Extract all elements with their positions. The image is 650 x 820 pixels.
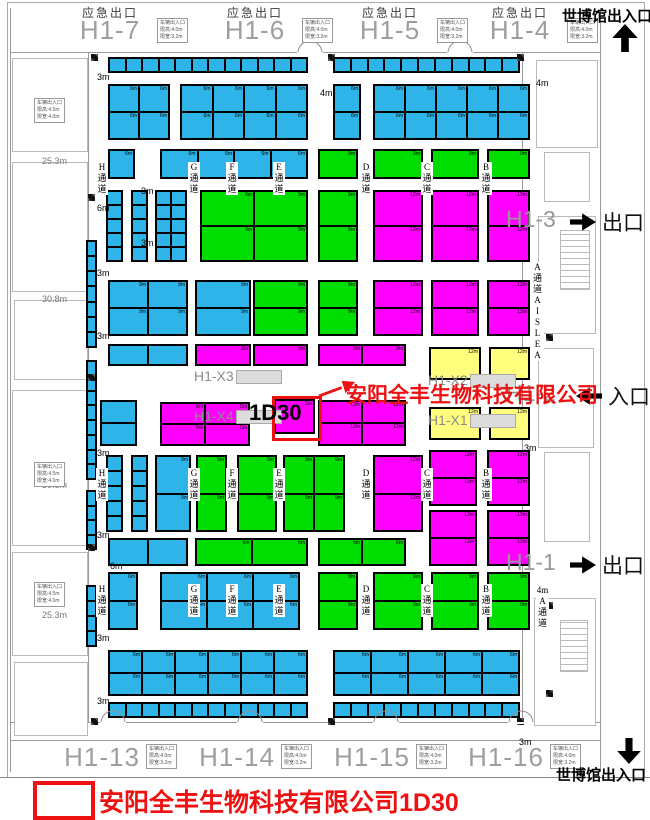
booth-block: 12m12m <box>429 450 477 506</box>
booth-cell: 6m <box>498 112 529 139</box>
booth-cell: 6m <box>244 112 276 139</box>
booth-cell: 9m <box>374 150 422 178</box>
booth-cell: 9m <box>319 150 357 178</box>
wall-line <box>10 8 11 772</box>
aisle-label-f: F通道 <box>226 162 238 195</box>
booth-cell: 9m <box>488 601 529 629</box>
right-arrow-icon <box>570 212 596 232</box>
gate-word-label: 出口 <box>602 550 644 580</box>
booth-block: 12m12m <box>373 190 423 262</box>
booth-cell: 9m <box>254 191 307 226</box>
gate-info-box: 车辆出入口限高:4.0m限宽:3.2m <box>146 744 177 769</box>
booth-cell <box>156 233 171 247</box>
booth-cell <box>107 233 122 247</box>
booth-block <box>106 455 123 532</box>
aisle-label-b: B通道 <box>480 584 492 617</box>
booth-cell: 6m <box>334 673 371 695</box>
booth-block: 9m9m <box>237 455 277 532</box>
booth-cell <box>142 703 159 717</box>
booth-cell <box>469 58 486 72</box>
booth-cell: 9m <box>319 281 357 308</box>
booth-block <box>131 455 148 532</box>
booth-cell: 12m <box>374 226 422 261</box>
booth-cell <box>87 506 96 521</box>
booth-cell: 6m <box>436 112 467 139</box>
booth-block: 12m12m <box>431 190 479 262</box>
booth-cell <box>87 302 96 317</box>
booth-cell: 9m <box>314 456 344 494</box>
booth-cell: 6m <box>161 573 207 601</box>
booth-cell <box>208 58 225 72</box>
aisle-marker-label: H1-X4 <box>194 408 234 424</box>
wall-line <box>10 740 600 741</box>
booth-cell <box>192 58 209 72</box>
booth-cell <box>109 345 148 365</box>
row-size-label: 3m <box>97 633 110 643</box>
booth-cell: 9m <box>156 494 190 532</box>
room-outline <box>544 452 590 542</box>
exhibition-floorplan: 世博馆出入口 世博馆出入口 1D30 安阳全丰生物科技有限公司 安阳全丰生物科技… <box>0 0 650 820</box>
row-size-label: 3m <box>97 696 110 706</box>
booth-cell: 6m <box>234 150 271 178</box>
booth-cell <box>132 501 147 516</box>
highlight-company-label: 安阳全丰生物科技有限公司 <box>346 379 598 409</box>
booth-cell: 6m <box>109 651 142 673</box>
booth-cell: 6m <box>109 673 142 695</box>
booth-cell: 6m <box>142 651 175 673</box>
booth-cell <box>87 256 96 271</box>
booth-cell: 5m <box>205 424 249 445</box>
booth-block: 9m9m <box>318 344 406 366</box>
booth-cell: 6m <box>467 112 498 139</box>
booth-cell <box>87 332 96 347</box>
gate-info-box: 车辆出入口限高:4.5m限宽:4.0m <box>34 98 65 123</box>
row-size-label: 6m <box>97 203 110 213</box>
booth-cell <box>87 491 96 506</box>
row-size-label: 3m <box>97 530 110 540</box>
hall-label-h1-16: H1-16 <box>468 742 544 773</box>
booth-cell <box>156 247 171 261</box>
booth-cell: 9m <box>197 494 226 532</box>
booth-cell <box>159 703 176 717</box>
booth-cell: 9m <box>284 494 314 532</box>
booth-cell: 9m <box>488 150 529 178</box>
booth-cell <box>87 631 96 646</box>
aisle-label-c: C通道 <box>421 584 433 617</box>
aisle-label-h: H通道 <box>96 162 108 195</box>
aisle-label-b: B通道 <box>480 468 492 501</box>
booth-cell: 9m <box>284 456 314 494</box>
aisle-marker-box <box>236 370 282 384</box>
door-icon <box>373 710 399 724</box>
booth-cell <box>87 420 96 435</box>
booth-block: 6m <box>108 149 135 179</box>
hall-label-h1-13: H1-13 <box>64 742 140 773</box>
booth-cell <box>435 703 452 717</box>
door-icon <box>100 710 126 724</box>
aisle-label-d: D通道 <box>360 162 372 195</box>
pillar-icon <box>546 690 553 697</box>
booth-cell: 9m <box>374 573 422 601</box>
booth-cell <box>351 703 368 717</box>
aisle-label-c: C通道 <box>421 468 433 501</box>
aisle-label-b: B通道 <box>480 162 492 195</box>
booth-cell: 12m <box>374 494 422 532</box>
wall-measurement: 25.3m <box>42 156 67 166</box>
aisle-marker-label: H1-X3 <box>194 368 234 384</box>
booth-cell: 6m <box>109 85 139 112</box>
booth-block: 9m9m9m9m <box>108 280 188 336</box>
aisle-label-e: E通道 <box>273 468 285 501</box>
booth-cell: 6m <box>109 150 134 178</box>
aisle-label-g: G通道 <box>188 468 200 501</box>
gate-info-box: 车辆出入口限高:4.0m限宽:3.2m <box>157 18 188 43</box>
booth-cell: 9m <box>197 456 226 494</box>
booth-cell <box>384 58 401 72</box>
booth-cell <box>107 516 122 531</box>
booth-block: 6m6m6m6m6m6m6m6m6m6m <box>333 650 520 696</box>
booth-cell <box>418 703 435 717</box>
booth-cell: 6m <box>161 601 207 629</box>
booth-block <box>108 344 188 366</box>
booth-cell <box>258 58 275 72</box>
gate-word-label: 出口 <box>602 207 644 237</box>
pillar-icon <box>517 54 524 61</box>
booth-cell: 9m <box>432 601 478 629</box>
room-outline <box>12 162 88 292</box>
booth-cell: 6m <box>436 85 467 112</box>
booth-cell: 6m <box>445 651 482 673</box>
booth-cell <box>132 456 147 471</box>
booth-cell: 6m <box>405 112 436 139</box>
hall-label-h1-4: H1-4 <box>490 15 550 46</box>
booth-cell: 6m <box>334 112 360 139</box>
booth-block <box>108 702 308 718</box>
row-size-label: 3m <box>97 72 110 82</box>
booth-block: 9m <box>253 344 308 366</box>
gate-info-box: 车辆出入口限高:4.0m限宽:3.2m <box>416 744 447 769</box>
booth-cell: 9m <box>109 281 148 308</box>
booth-block: 12m12m <box>487 450 530 506</box>
booth-cell: 6m <box>244 85 276 112</box>
booth-cell <box>107 501 122 516</box>
booth-block: 6m6m <box>108 572 138 630</box>
aisle-label-c: C通道 <box>421 162 433 195</box>
booth-cell: 6m <box>175 673 208 695</box>
booth-block: 6m6m6m6m6m6m6m6m6m6m <box>373 84 530 140</box>
booth-cell <box>87 435 96 450</box>
booth-cell: 6m <box>362 539 405 565</box>
booth-cell: 6m <box>482 651 519 673</box>
booth-cell: 6m <box>109 601 137 629</box>
booth-cell: 9m <box>319 226 357 261</box>
booth-cell: 12m <box>374 308 422 335</box>
booth-cell <box>132 516 147 531</box>
booth-cell <box>291 703 308 717</box>
booth-block <box>155 190 187 262</box>
booth-cell <box>109 58 126 72</box>
booth-cell <box>156 191 171 205</box>
hall-label-h1-6: H1-6 <box>225 15 285 46</box>
row-size-label: 4m <box>536 78 549 88</box>
row-size-label: 3m <box>141 238 154 248</box>
pillar-icon <box>88 374 95 381</box>
booth-cell: 6m <box>498 85 529 112</box>
booth-cell <box>171 247 186 261</box>
booth-cell: 9m <box>148 308 187 335</box>
booth-cell: 6m <box>139 112 169 139</box>
aisle-label-g: G通道 <box>188 584 200 617</box>
aisle-label-a: A通道AISLEA <box>531 262 544 361</box>
booth-cell: 9m <box>319 308 357 335</box>
booth-cell <box>148 539 187 565</box>
booth-cell: 6m <box>252 539 308 565</box>
booth-cell: 9m <box>319 601 357 629</box>
pillar-icon <box>328 718 335 725</box>
aisle-marker-label: H1-X1 <box>428 412 468 428</box>
booth-cell: 12m <box>430 478 476 505</box>
pillar-icon <box>546 334 553 341</box>
hall-label-h1-14: H1-14 <box>199 742 275 773</box>
stairs-icon <box>560 620 588 672</box>
booth-cell <box>87 450 96 465</box>
booth-cell: 6m <box>319 539 362 565</box>
booth-cell: 6m <box>276 85 308 112</box>
booth-cell: 9m <box>432 150 478 178</box>
booth-cell: 12m <box>432 226 478 261</box>
booth-cell: 6m <box>408 651 445 673</box>
legend-separator <box>0 777 650 778</box>
aisle-label-h: H通道 <box>96 584 108 617</box>
booth-cell: 6m <box>213 85 245 112</box>
booth-cell: 6m <box>334 651 371 673</box>
booth-cell <box>485 703 502 717</box>
gate-info-box: 车辆出入口限高:4.5m限宽:4.0m <box>34 582 65 607</box>
booth-cell <box>274 703 291 717</box>
booth-cell <box>87 586 96 601</box>
booth-cell: 6m <box>274 673 307 695</box>
booth-cell <box>469 703 486 717</box>
booth-cell <box>126 58 143 72</box>
booth-cell: 12m <box>430 538 476 565</box>
booth-cell <box>192 703 209 717</box>
booth-block: 9m9m <box>196 455 227 532</box>
booth-cell: 9m <box>362 345 405 365</box>
booth-block: 6m6m <box>195 538 308 566</box>
booth-cell <box>107 456 122 471</box>
pillar-icon <box>328 54 335 61</box>
booth-cell: 12m <box>488 308 529 335</box>
booth-cell: 9m <box>156 456 190 494</box>
aisle-label-g: G通道 <box>188 162 200 195</box>
booth-cell <box>368 58 385 72</box>
booth-block: 9m9m <box>155 455 191 532</box>
booth-cell: 9m <box>254 308 307 335</box>
booth-cell: 12m <box>488 511 529 538</box>
booth-cell <box>101 423 136 445</box>
door-icon <box>508 710 534 724</box>
booth-cell: 6m <box>371 651 408 673</box>
booth-cell: 6m <box>109 112 139 139</box>
booth-block: 9m <box>431 149 479 179</box>
booth-block <box>100 400 137 446</box>
booth-cell: 9m <box>109 308 148 335</box>
pillar-icon <box>91 54 98 61</box>
booth-cell: 6m <box>405 85 436 112</box>
aisle-label-d: D通道 <box>360 468 372 501</box>
row-size-label: 4m <box>320 88 333 98</box>
booth-cell <box>87 241 96 256</box>
booth-cell <box>132 247 147 261</box>
row-size-label: 3m <box>97 268 110 278</box>
pillar-icon <box>88 194 95 201</box>
booth-block: 12m12m <box>373 455 423 532</box>
pillar-icon <box>88 544 95 551</box>
gate-info-box: 车辆出入口限高:4.0m限宽:3.2m <box>437 18 468 43</box>
booth-cell <box>241 58 258 72</box>
booth-block: 12m12m <box>431 280 479 336</box>
booth-cell: 6m <box>274 651 307 673</box>
aisle-label-e: E通道 <box>273 584 285 617</box>
booth-cell <box>132 486 147 501</box>
up-arrow-icon <box>612 24 638 52</box>
booth-block <box>106 190 123 262</box>
booth-cell: 6m <box>371 673 408 695</box>
booth-cell: 12m <box>488 281 529 308</box>
booth-cell <box>291 58 308 72</box>
booth-cell: 12m <box>432 281 478 308</box>
room-outline <box>544 152 590 202</box>
booth-cell <box>401 703 418 717</box>
hall-label-h1-15: H1-15 <box>334 742 410 773</box>
booth-block: 9m <box>195 344 251 366</box>
booth-cell <box>452 703 469 717</box>
booth-cell: 9m <box>201 226 254 261</box>
booth-cell: 6m <box>241 651 274 673</box>
booth-cell: 12m <box>374 191 422 226</box>
booth-cell: 6m <box>142 673 175 695</box>
booth-cell: 6m <box>241 673 274 695</box>
booth-cell: 9m <box>254 281 307 308</box>
gate-word-label: 入口 <box>608 381 650 411</box>
booth-block: 9m9m <box>373 572 423 630</box>
booth-cell: 9m <box>201 191 254 226</box>
booth-cell: 9m <box>196 308 250 335</box>
legend-company-label: 安阳全丰生物科技有限公司1D30 <box>99 783 459 819</box>
booth-cell <box>334 703 351 717</box>
booth-cell: 12m <box>488 451 529 478</box>
booth-cell: 9m <box>319 573 357 601</box>
row-size-label: 3m <box>97 331 110 341</box>
booth-cell <box>156 219 171 233</box>
booth-cell <box>208 703 225 717</box>
booth-block: 9m9m <box>487 572 530 630</box>
booth-block: 9m9m <box>195 280 251 336</box>
booth-cell: 6m <box>408 673 445 695</box>
booth-block: 6m6m6m6m6m6m6m6m <box>180 84 308 140</box>
booth-cell <box>171 205 186 219</box>
gate-hall-label-h1-3: H1-3 <box>506 206 556 233</box>
booth-cell: 5m <box>161 424 205 445</box>
booth-cell <box>107 486 122 501</box>
hall-label-h1-7: H1-7 <box>80 15 140 46</box>
down-arrow-icon <box>616 738 642 764</box>
aisle-label-f: F通道 <box>226 468 238 501</box>
aisle-marker-box <box>470 414 516 428</box>
booth-block: 9m9m <box>318 280 358 336</box>
booth-block: 12m12m <box>487 280 530 336</box>
booth-block <box>108 57 308 73</box>
booth-cell: 12m <box>319 423 362 445</box>
booth-cell <box>418 58 435 72</box>
booth-block <box>333 57 520 73</box>
booth-cell: 6m <box>482 673 519 695</box>
booth-cell: 12m <box>488 478 529 505</box>
gate-hall-label-h1-1: H1-1 <box>506 549 556 576</box>
booth-block: 9m9m <box>431 572 479 630</box>
booth-cell <box>225 58 242 72</box>
booth-cell: 6m <box>445 673 482 695</box>
booth-cell <box>87 286 96 301</box>
booth-cell: 12m <box>430 451 476 478</box>
booth-block <box>333 702 520 718</box>
booth-cell <box>452 58 469 72</box>
booth-cell: 9m <box>488 573 529 601</box>
booth-cell: 6m <box>139 85 169 112</box>
booth-cell: 6m <box>181 112 213 139</box>
booth-block: 9m9m <box>253 280 308 336</box>
booth-cell: 9m <box>374 601 422 629</box>
booth-cell: 6m <box>208 651 241 673</box>
gate-info-box: 车辆出入口限高:4.5m限宽:4.0m <box>34 462 65 487</box>
expo-entrance-bottom-label: 世博馆出入口 <box>556 764 646 785</box>
booth-cell: 9m <box>319 345 362 365</box>
booth-cell <box>107 247 122 261</box>
gate-info-box: 车辆出入口限高:4.0m限宽:3.2m <box>281 744 312 769</box>
booth-cell <box>274 58 291 72</box>
room-outline <box>14 662 88 736</box>
gate-info-box: 车辆出入口限高:4.0m限宽:3.2m <box>302 18 333 43</box>
booth-cell <box>175 58 192 72</box>
booth-block: 12m12m <box>429 510 477 566</box>
booth-cell: 6m <box>374 85 405 112</box>
booth-cell <box>485 58 502 72</box>
booth-cell <box>126 703 143 717</box>
booth-cell: 9m <box>254 226 307 261</box>
booth-block: 9m9m <box>318 190 358 262</box>
booth-cell <box>87 520 96 535</box>
pillar-icon <box>91 718 98 725</box>
booth-cell <box>171 219 186 233</box>
booth-cell: 12m <box>374 456 422 494</box>
booth-cell: 9m <box>314 494 344 532</box>
booth-cell: 6m <box>181 85 213 112</box>
room-outline <box>14 300 88 380</box>
booth-cell <box>132 205 147 219</box>
booth-cell: 6m <box>334 85 360 112</box>
hall-label-h1-5: H1-5 <box>360 15 420 46</box>
booth-cell: 6m <box>467 85 498 112</box>
door-icon <box>237 710 263 724</box>
booth-cell: 9m <box>319 191 357 226</box>
right-arrow-icon <box>570 555 596 575</box>
booth-cell <box>107 471 122 486</box>
stairs-icon <box>560 230 590 290</box>
row-size-label: 6m <box>110 561 123 571</box>
booth-block: 6m6m <box>333 84 361 140</box>
booth-cell <box>334 58 351 72</box>
booth-block: 9m <box>487 149 530 179</box>
